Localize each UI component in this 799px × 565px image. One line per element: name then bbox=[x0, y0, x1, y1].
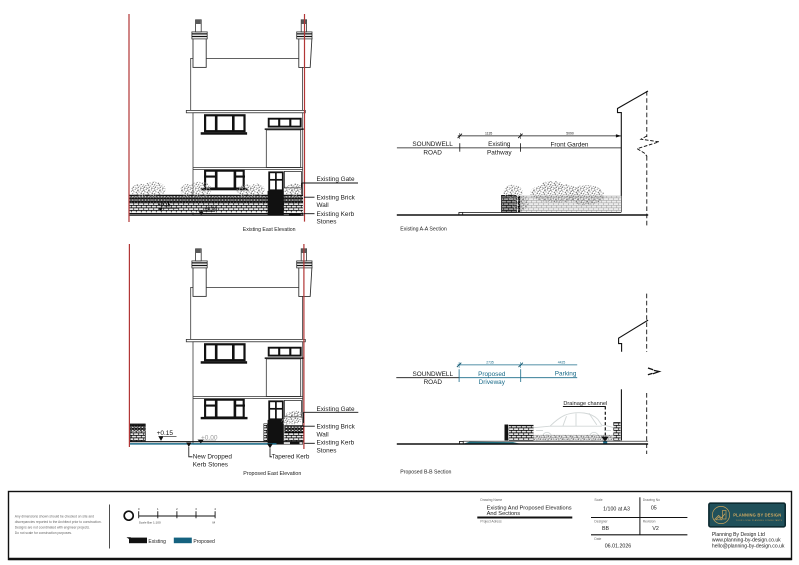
svg-text:Drawing No: Drawing No bbox=[643, 498, 660, 502]
svg-text:Proposed: Proposed bbox=[478, 371, 506, 378]
svg-text:4: 4 bbox=[214, 507, 216, 511]
svg-text:Existing Gate: Existing Gate bbox=[317, 406, 355, 413]
svg-text:Stones: Stones bbox=[317, 447, 337, 454]
svg-text:1/100 at A3: 1/100 at A3 bbox=[603, 507, 630, 513]
svg-text:Tapered Kerb: Tapered Kerb bbox=[272, 454, 310, 461]
svg-text:Existing Brick: Existing Brick bbox=[317, 195, 356, 202]
svg-text:Date: Date bbox=[594, 537, 601, 541]
svg-text:Scale: Scale bbox=[594, 498, 602, 502]
svg-text:Do not scale for construction: Do not scale for construction purposes. bbox=[15, 531, 72, 535]
svg-text:Proposed East Elevation: Proposed East Elevation bbox=[243, 471, 301, 477]
svg-text:Drawing Name: Drawing Name bbox=[480, 498, 502, 502]
svg-text:Existing: Existing bbox=[148, 539, 166, 545]
svg-text:Wall: Wall bbox=[317, 202, 329, 209]
svg-text:0: 0 bbox=[138, 507, 140, 511]
svg-text:Existing Kerb: Existing Kerb bbox=[317, 211, 355, 218]
svg-text:Driveway: Driveway bbox=[479, 379, 506, 386]
svg-text:SOUNDWELL: SOUNDWELL bbox=[412, 141, 453, 148]
svg-text:2735: 2735 bbox=[486, 361, 494, 365]
svg-text:Existing: Existing bbox=[488, 141, 511, 148]
svg-text:ROAD: ROAD bbox=[424, 379, 443, 386]
svg-text:M: M bbox=[213, 520, 216, 524]
svg-text:+0.15: +0.15 bbox=[157, 430, 174, 437]
svg-text:Existing A-A Section: Existing A-A Section bbox=[400, 226, 447, 232]
svg-text:Stones: Stones bbox=[317, 219, 337, 226]
svg-text:Designer: Designer bbox=[594, 520, 608, 524]
svg-text:Front Garden: Front Garden bbox=[550, 142, 588, 149]
svg-text:5090: 5090 bbox=[566, 132, 574, 136]
svg-text:Wall: Wall bbox=[317, 432, 329, 439]
svg-text:06.01.2026: 06.01.2026 bbox=[605, 543, 632, 549]
svg-text:New Dropped: New Dropped bbox=[193, 454, 233, 461]
svg-text:Proposed B-B Section: Proposed B-B Section bbox=[400, 470, 451, 476]
svg-text:Project Adress: Project Adress bbox=[480, 520, 502, 524]
svg-text:Drainage channel: Drainage channel bbox=[563, 401, 607, 407]
svg-text:4425: 4425 bbox=[558, 361, 566, 365]
svg-text:Existing East Elevation: Existing East Elevation bbox=[243, 227, 296, 233]
svg-text:ROAD: ROAD bbox=[423, 150, 442, 157]
svg-text:Revision: Revision bbox=[643, 520, 656, 524]
svg-text:PLANNING BY DESIGN: PLANNING BY DESIGN bbox=[733, 512, 781, 517]
svg-text:05: 05 bbox=[651, 506, 657, 512]
svg-text:Scale Bar 1:100: Scale Bar 1:100 bbox=[139, 520, 161, 524]
svg-text:1135: 1135 bbox=[485, 132, 492, 136]
svg-text:And Sections: And Sections bbox=[487, 511, 521, 517]
svg-text:Existing Gate: Existing Gate bbox=[317, 176, 355, 183]
svg-text:hello@planning-by-design.co.uk: hello@planning-by-design.co.uk bbox=[712, 543, 785, 549]
svg-text:2: 2 bbox=[176, 507, 178, 511]
svg-text:1: 1 bbox=[157, 507, 159, 511]
svg-text:3: 3 bbox=[195, 507, 197, 511]
svg-text:Existing Kerb: Existing Kerb bbox=[317, 439, 355, 446]
svg-text:Proposed: Proposed bbox=[193, 539, 215, 545]
svg-text:Kerb Stones: Kerb Stones bbox=[193, 461, 228, 468]
svg-text:SOUNDWELL: SOUNDWELL bbox=[413, 371, 454, 378]
svg-text:YOUR LOCAL PLANNING CONSULTANT: YOUR LOCAL PLANNING CONSULTANTS bbox=[736, 519, 783, 522]
svg-text:+0.15: +0.15 bbox=[158, 202, 171, 208]
svg-text:Parking: Parking bbox=[555, 370, 577, 377]
svg-text:Existing Brick: Existing Brick bbox=[317, 423, 356, 430]
svg-text:Any dimensions shown should be: Any dimensions shown should be checked o… bbox=[15, 515, 94, 519]
svg-text:Designs are not coordinated wi: Designs are not coordinated with enginee… bbox=[15, 526, 90, 530]
svg-text:BB: BB bbox=[602, 526, 610, 532]
svg-text:V2: V2 bbox=[652, 526, 659, 532]
svg-text:discrepancies reported to the: discrepancies reported to the Architect … bbox=[15, 520, 102, 524]
svg-text:Pathway: Pathway bbox=[487, 150, 512, 157]
